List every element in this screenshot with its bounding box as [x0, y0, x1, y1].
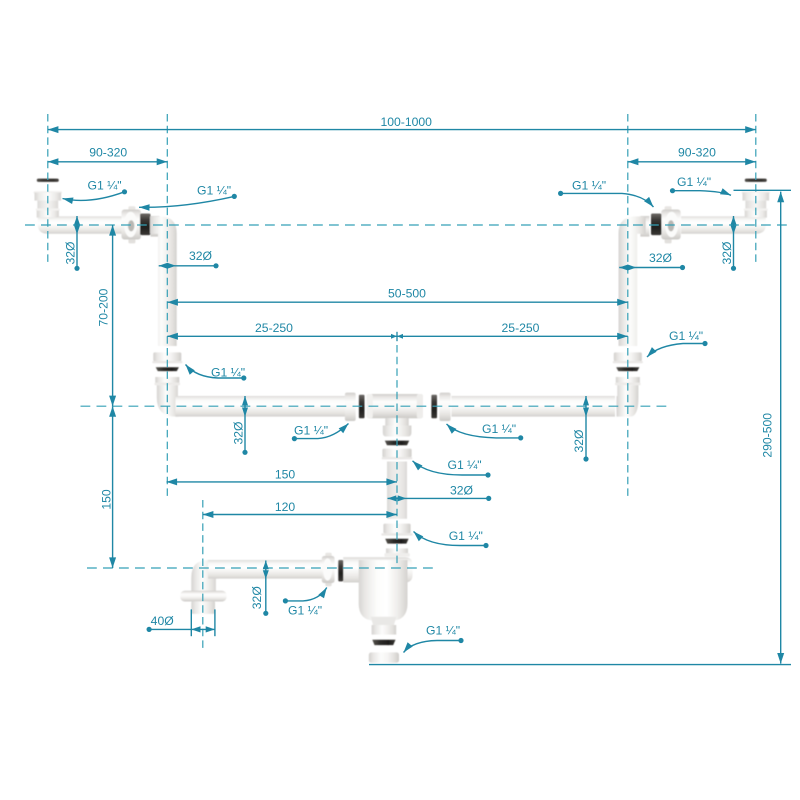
- svg-text:32Ø: 32Ø: [189, 249, 213, 263]
- svg-text:32Ø: 32Ø: [250, 586, 264, 610]
- svg-text:G1 ¼": G1 ¼": [572, 179, 606, 193]
- svg-text:150: 150: [100, 489, 114, 510]
- svg-text:G1 ¼": G1 ¼": [288, 604, 322, 618]
- svg-text:32Ø: 32Ø: [572, 429, 586, 453]
- svg-text:25-250: 25-250: [502, 321, 540, 335]
- svg-text:32Ø: 32Ø: [450, 483, 474, 497]
- svg-text:G1 ¼": G1 ¼": [677, 175, 711, 189]
- svg-text:32Ø: 32Ø: [63, 241, 77, 265]
- svg-text:G1 ¼": G1 ¼": [669, 329, 703, 343]
- svg-text:G1 ¼": G1 ¼": [88, 179, 122, 193]
- svg-text:90-320: 90-320: [89, 146, 127, 160]
- svg-text:32Ø: 32Ø: [649, 251, 673, 265]
- svg-text:70-200: 70-200: [96, 288, 110, 326]
- svg-text:G1 ¼": G1 ¼": [449, 529, 483, 543]
- svg-text:25-250: 25-250: [255, 321, 293, 335]
- svg-text:32Ø: 32Ø: [231, 421, 245, 445]
- svg-text:G1 ¼": G1 ¼": [426, 624, 460, 638]
- svg-text:120: 120: [275, 500, 296, 514]
- svg-text:90-320: 90-320: [678, 146, 716, 160]
- svg-text:G1 ¼": G1 ¼": [197, 184, 231, 198]
- svg-text:100-1000: 100-1000: [380, 115, 432, 129]
- svg-text:40Ø: 40Ø: [151, 614, 175, 628]
- svg-text:32Ø: 32Ø: [720, 241, 734, 265]
- svg-text:150: 150: [275, 468, 296, 482]
- svg-text:G1 ¼": G1 ¼": [482, 422, 516, 436]
- svg-text:50-500: 50-500: [388, 287, 426, 301]
- svg-text:G1 ¼": G1 ¼": [448, 458, 482, 472]
- svg-text:G1 ¼": G1 ¼": [294, 424, 328, 438]
- svg-text:290-500: 290-500: [761, 413, 775, 458]
